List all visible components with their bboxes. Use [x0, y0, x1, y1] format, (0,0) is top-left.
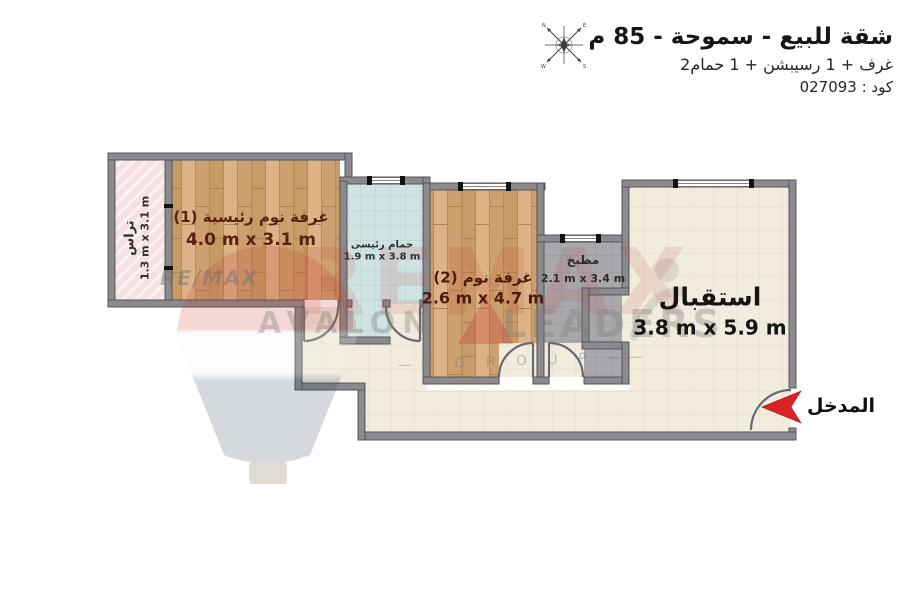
listing-header: شقة للبيع - سموحة - 85 م 2غرف + 1 رسيبشن… — [588, 24, 893, 96]
svg-text:W: W — [541, 64, 546, 70]
listing-subtitle: 2غرف + 1 رسيبشن + 1 حمام — [588, 55, 893, 74]
svg-text:E: E — [583, 23, 586, 29]
svg-text:N: N — [542, 23, 546, 29]
svg-text:S: S — [583, 64, 586, 70]
compass-icon: N E S W — [539, 20, 589, 70]
floor-plan-page: REMAX RE/MAX AVALON LEADERS —— G R O U P… — [0, 0, 900, 599]
listing-code: كود : 027093 — [588, 78, 893, 96]
listing-title: شقة للبيع - سموحة - 85 م — [588, 24, 893, 52]
